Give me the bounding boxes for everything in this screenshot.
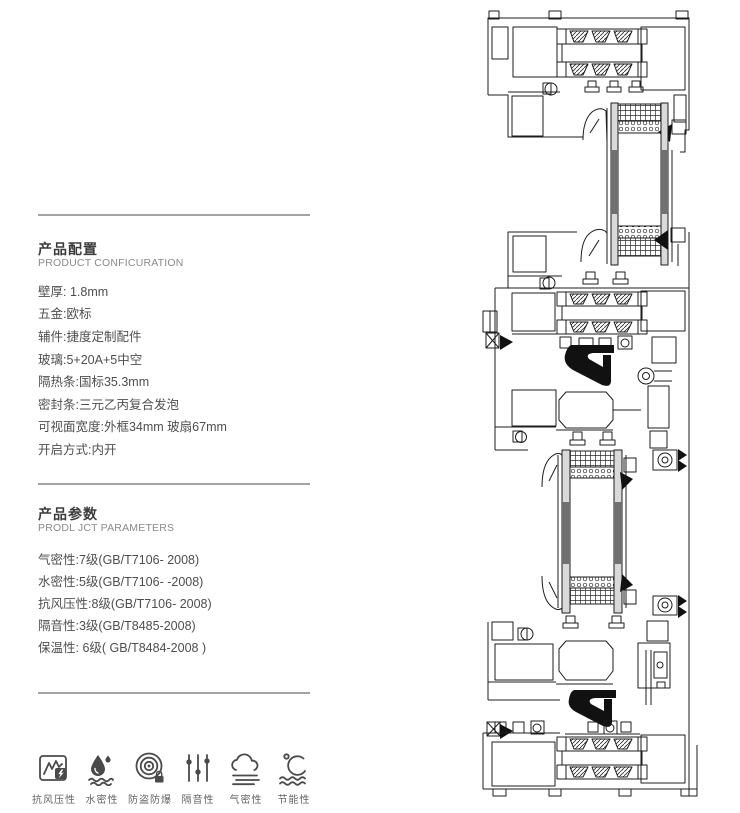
lower-glass-unit [542, 450, 636, 613]
sill-frame-section [483, 595, 697, 796]
window-cross-section-drawing [0, 0, 740, 813]
